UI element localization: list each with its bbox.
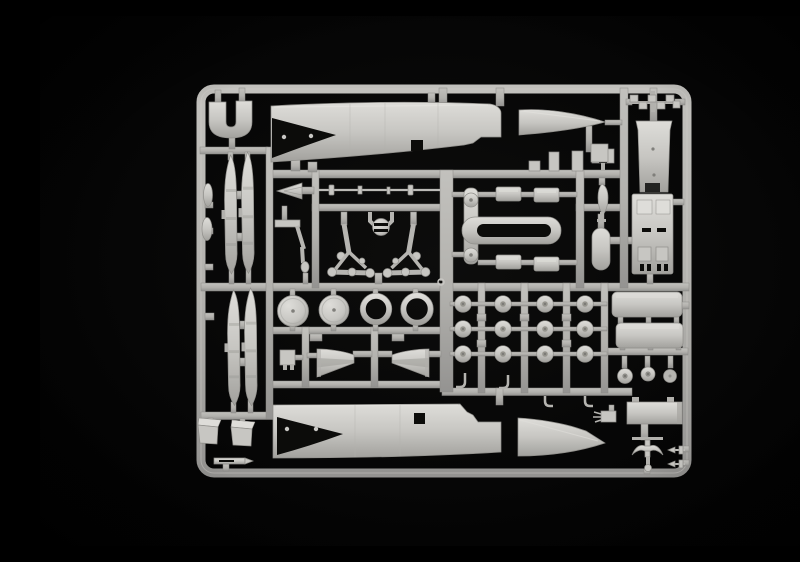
sprue-drawing xyxy=(40,16,800,546)
sprue-photo: Photograph of a light grey injection-mou… xyxy=(40,16,800,546)
photo-vignette xyxy=(40,16,800,546)
